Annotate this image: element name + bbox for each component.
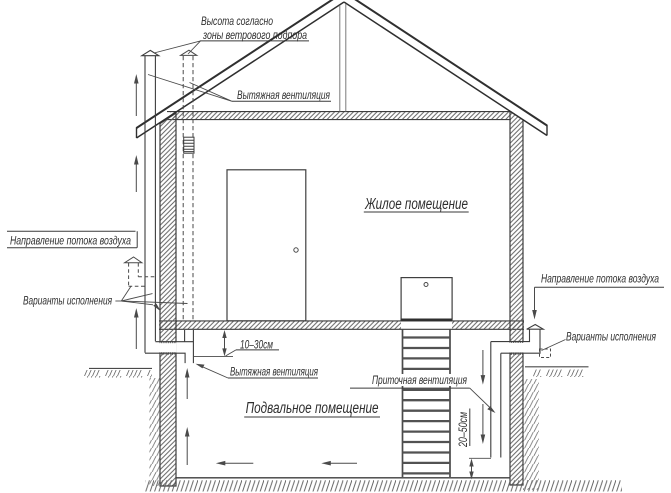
svg-text:Вытяжная вентиляция: Вытяжная вентиляция — [237, 88, 330, 102]
svg-text:Вытяжная вентиляция: Вытяжная вентиляция — [230, 365, 318, 379]
svg-text:Подвальное помещение: Подвальное помещение — [246, 400, 379, 417]
svg-text:Направление потока воздуха: Направление потока воздуха — [10, 234, 131, 248]
svg-text:Варианты исполнения: Варианты исполнения — [566, 329, 656, 343]
svg-text:Жилое помещение: Жилое помещение — [364, 196, 468, 213]
svg-text:Приточная вентиляция: Приточная вентиляция — [372, 373, 467, 387]
svg-text:20–50см: 20–50см — [458, 412, 470, 448]
svg-text:Высота согласно: Высота согласно — [201, 14, 273, 28]
svg-text:Направление потока воздуха: Направление потока воздуха — [541, 272, 659, 286]
svg-text:зоны ветрового подпора: зоны ветрового подпора — [202, 28, 307, 42]
svg-text:Варианты исполнения: Варианты исполнения — [23, 294, 112, 308]
